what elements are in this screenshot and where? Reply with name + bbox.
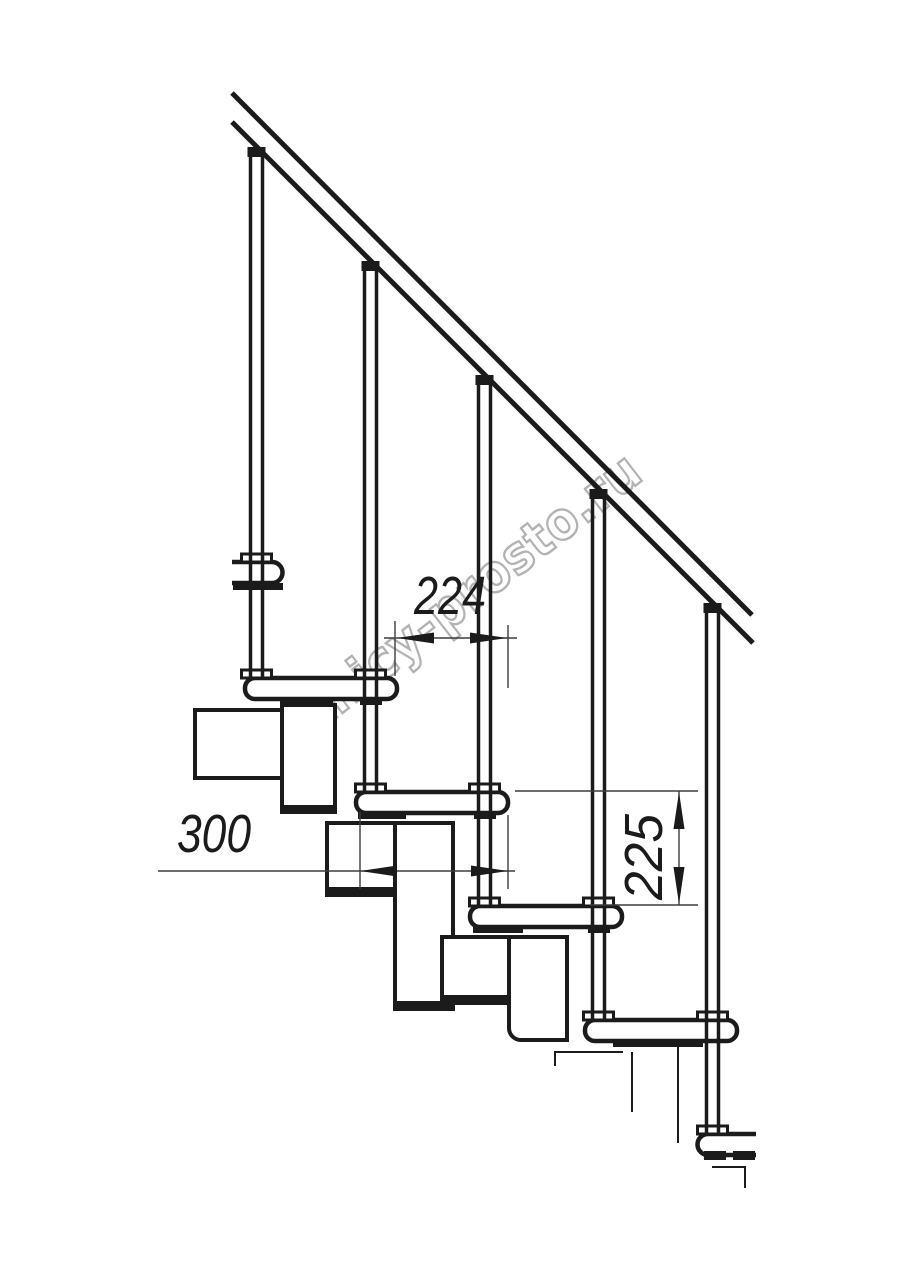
dimension-label-rise: 225 bbox=[614, 813, 674, 901]
tread-5-bottom-fitting bbox=[613, 1039, 703, 1047]
tread-1-bottom-fitting bbox=[233, 583, 283, 590]
staircase-technical-drawing: lestnicy-prosto.ru bbox=[0, 0, 914, 1280]
baluster-3-collar-on-tread-3 bbox=[470, 784, 500, 792]
baluster-2-foot-on-tread-3 bbox=[356, 784, 386, 792]
baluster-5-foot-on-tread-6 bbox=[698, 1126, 728, 1134]
module-box-under-tread-3-left bbox=[327, 823, 403, 895]
baluster-3-foot-on-tread-4 bbox=[470, 898, 500, 906]
tread-2-bottom-fitting bbox=[280, 697, 333, 705]
dimension-label-run: 224 bbox=[413, 566, 486, 626]
tread-2 bbox=[245, 678, 397, 699]
tread-6-bottom-fitting-b bbox=[733, 1151, 755, 1160]
module-bottom-plate-2 bbox=[280, 805, 337, 814]
tread-6-bottom-fitting-a bbox=[704, 1151, 726, 1160]
tread-5 bbox=[585, 1020, 737, 1041]
tread-4-bottom-fitting bbox=[473, 925, 523, 933]
baluster-1-foot-on-tread-2 bbox=[242, 670, 272, 678]
module-box-under-tread-2 bbox=[282, 705, 335, 812]
module-box-under-tread-2-left bbox=[195, 710, 282, 778]
baluster-4-foot-on-tread-5 bbox=[584, 1012, 614, 1020]
module-box-under-tread-4 bbox=[509, 937, 567, 1040]
baluster-1-collar-on-tread-1 bbox=[242, 554, 272, 562]
baluster-5-collar-on-tread-5 bbox=[698, 1012, 728, 1020]
dimension-label-depth: 300 bbox=[177, 804, 251, 864]
tread-3-bottom-fitting bbox=[358, 811, 406, 819]
drawing-page: lestnicy-prosto.ru bbox=[0, 0, 914, 1280]
tread-4 bbox=[470, 906, 622, 927]
baluster-2-collar-on-tread-2 bbox=[356, 670, 386, 678]
tread-3 bbox=[356, 792, 508, 813]
tread-1 bbox=[232, 562, 283, 583]
